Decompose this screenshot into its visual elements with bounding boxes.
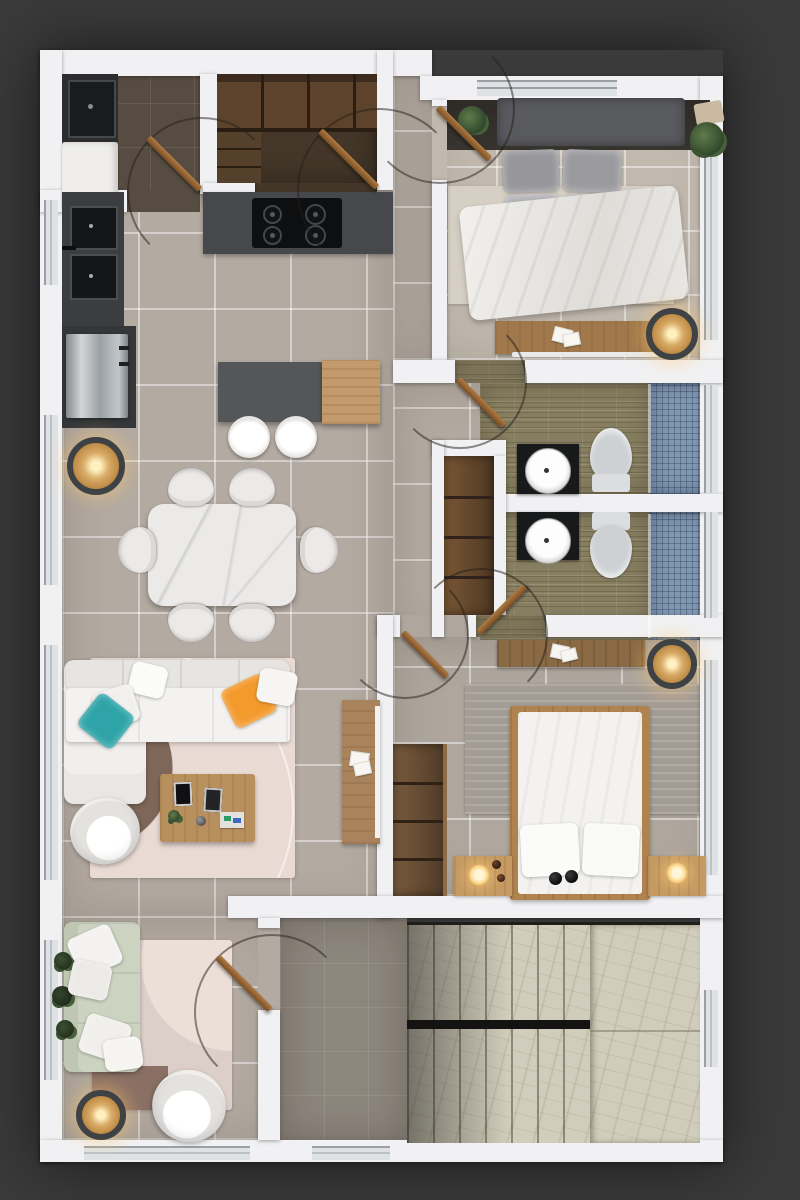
- landing-joint-line: [590, 1030, 700, 1032]
- window-bottom-lounge: [84, 1146, 250, 1160]
- book-color-spot: [233, 818, 241, 823]
- toilet-bathroom-1: [590, 428, 632, 480]
- bar-stool: [275, 416, 317, 458]
- shelf-line: [393, 858, 447, 861]
- kitchen-sink-2: [70, 254, 118, 300]
- fridge-handle: [119, 346, 129, 350]
- basket-lamp-bedroom-1: [646, 308, 698, 360]
- lamp-bed2-left: [468, 864, 490, 886]
- laundry-sink: [68, 80, 116, 138]
- bed2-dark-decor: [549, 872, 562, 885]
- lounge-plant: [54, 952, 72, 970]
- stairs-shadow-overlay: [407, 925, 590, 1020]
- window-right-bath2: [704, 512, 718, 618]
- wall-bed2-top-c: [546, 615, 723, 637]
- shelf-unit-bedroom-2: [393, 744, 447, 896]
- basket-floor-lamp-lounge: [76, 1090, 126, 1140]
- shower-glass-bathroom-1: [648, 384, 651, 493]
- niche-shelf-line: [444, 496, 494, 499]
- floor-plan-render: [0, 0, 800, 1200]
- stairs-lower-flight: [407, 1029, 590, 1143]
- bed1-pillow: [502, 149, 559, 193]
- fridge-handle: [119, 362, 129, 366]
- bed2-pillow: [582, 823, 641, 878]
- window-right-bedroom2: [704, 660, 718, 875]
- window-right-bath1: [704, 385, 718, 493]
- bar-stool: [228, 416, 270, 458]
- kitchen-island: [218, 362, 322, 422]
- headboard-bedroom-1: [497, 98, 685, 146]
- dining-chair: [118, 527, 156, 573]
- sink-drain-dot: [89, 224, 93, 228]
- kitchen-sink-1: [70, 206, 118, 250]
- kitchen-island-wood-top: [322, 360, 380, 424]
- window-left-kitchen: [44, 200, 58, 285]
- plant-nightstand-right: [690, 122, 724, 156]
- wall-lounge-right-stub: [258, 918, 280, 928]
- stairs-gap: [407, 1020, 590, 1029]
- photo-frame: [203, 788, 222, 813]
- coffee-table: [160, 774, 255, 842]
- pendant-basket-lamp-dining: [67, 437, 125, 495]
- nightstand-item: [497, 874, 505, 882]
- stairs-upper-flight: [407, 925, 590, 1020]
- toilet-tank-bathroom-1: [592, 474, 630, 492]
- media-console-panel: [375, 706, 380, 838]
- lounge-plant: [56, 1020, 74, 1038]
- coffee-table-book: [220, 812, 244, 828]
- shelf-edge: [443, 744, 447, 896]
- dining-table: [148, 504, 296, 606]
- window-right-bedroom1: [704, 150, 718, 340]
- pantry-shelf-divider: [307, 74, 310, 132]
- bed1-pillow: [562, 149, 621, 193]
- dining-chair: [168, 468, 214, 506]
- coffee-table-plant: [168, 810, 180, 822]
- sofa-white-pillow: [255, 667, 298, 707]
- lamp-bed2-right: [666, 862, 688, 884]
- wall-bath1-top-right: [525, 360, 723, 383]
- window-left-living: [44, 645, 58, 880]
- shelf-line: [393, 820, 447, 823]
- shower-glass-bathroom-2: [648, 514, 651, 638]
- kitchen-faucet: [62, 246, 76, 250]
- lounge-white-pillow: [102, 1036, 144, 1073]
- wall-bath-divider: [492, 494, 723, 512]
- desk-shelf-strip: [512, 352, 660, 357]
- shelf-line: [393, 782, 447, 785]
- window-left-dining: [44, 415, 58, 585]
- dining-chair: [229, 468, 275, 506]
- window-bottom-hall: [312, 1146, 390, 1160]
- niche-shelf-line: [444, 536, 494, 539]
- window-right-stairs: [704, 990, 718, 1067]
- bed2-dark-decor: [565, 870, 578, 883]
- sink-drain-dot: [89, 274, 93, 278]
- stairs-landing: [590, 925, 700, 1143]
- basket-lamp-bedroom-2: [647, 639, 697, 689]
- coffee-table-vase: [196, 816, 206, 826]
- sink-drain-bathroom-2: [544, 538, 549, 543]
- stairs-shadow-overlay: [407, 1029, 590, 1143]
- sink-drain-bathroom-1: [544, 468, 549, 473]
- photo-frame: [174, 782, 193, 807]
- laundry-faucet-dot: [88, 104, 93, 109]
- pantry-shelf-divider: [261, 74, 264, 132]
- bed1-duvet: [459, 185, 690, 321]
- book-color-spot: [224, 816, 231, 821]
- nightstand-item: [492, 860, 501, 869]
